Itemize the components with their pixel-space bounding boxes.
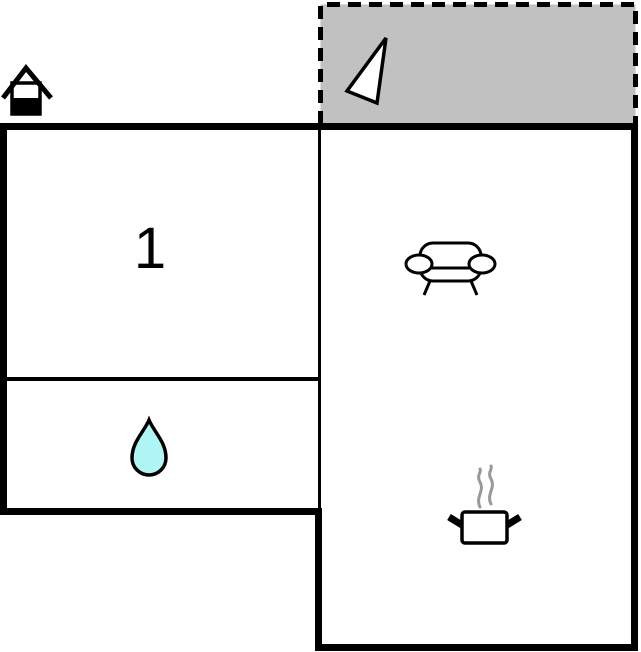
room-number-label: 1 <box>134 216 166 281</box>
wall-interior-vertical <box>318 130 321 508</box>
wall-bottom <box>315 644 638 651</box>
wall-interior-horizontal <box>7 377 320 381</box>
wall-bottom-left-section <box>0 508 322 515</box>
wall-mid-vertical-lower <box>315 508 322 651</box>
wall-left <box>0 123 7 515</box>
terrace <box>321 5 636 125</box>
pot-body <box>462 512 507 543</box>
floor-plan: 1 <box>0 0 641 652</box>
room-bedroom-1: 1 <box>134 216 166 281</box>
house-body-lower <box>12 98 40 115</box>
sofa-armrest-left <box>406 255 432 273</box>
sofa-armrest-right <box>469 255 495 273</box>
wall-right <box>631 123 638 651</box>
wall-top <box>0 123 638 130</box>
